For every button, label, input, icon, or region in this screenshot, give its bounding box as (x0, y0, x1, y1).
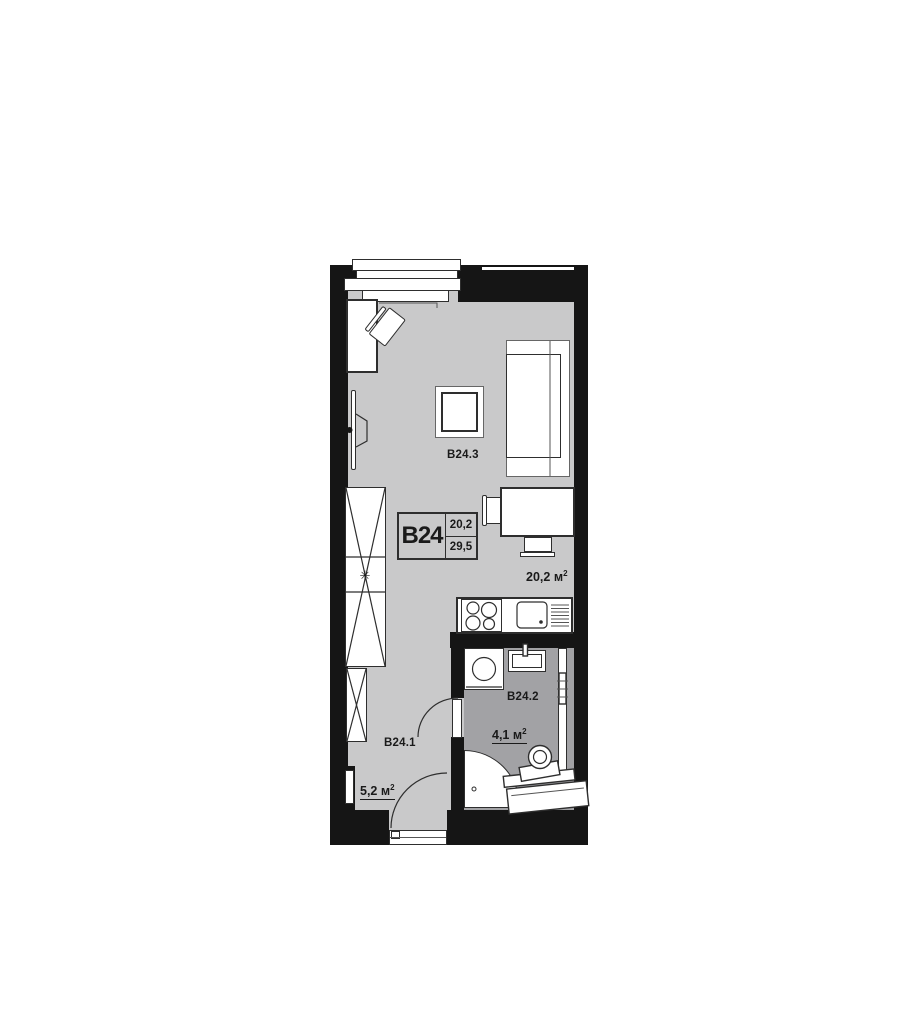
area-label-living: 20,2 м2 (526, 570, 568, 584)
unit-area-lower: 29,5 (446, 537, 476, 559)
unit-code: B24 (399, 514, 445, 558)
unit-values: 20,2 29,5 (445, 514, 476, 558)
wall-bath-divider-lower (451, 737, 464, 810)
wall-bottom-left (330, 810, 389, 845)
washing-machine (464, 648, 504, 690)
entrance-recess-floor (389, 810, 447, 832)
stool-base (520, 552, 555, 557)
area-label-hall: 5,2 м2 (360, 784, 395, 798)
bath-sink-basin (512, 654, 542, 668)
tv (351, 390, 356, 470)
bathroom-door-hinge (452, 689, 463, 698)
wall-top-right (458, 265, 588, 302)
wall-detail-line (482, 267, 574, 270)
ventilation-star-icon: ✳ (356, 569, 374, 583)
wall-right (574, 265, 588, 845)
room-label-living: B24.3 (447, 449, 479, 461)
bed-mattress (506, 354, 561, 458)
desk (500, 487, 575, 537)
wall-bath-top (450, 632, 574, 648)
unit-card: B24 20,2 29,5 (397, 512, 478, 560)
stove (461, 599, 502, 632)
wall-niche (345, 770, 354, 804)
bathroom-door-leaf (452, 699, 462, 738)
entrance-door-handle (391, 831, 400, 839)
desk-chair-seat (486, 497, 501, 524)
floor-plan-canvas: ✳ B24 20,2 29,5 B24.3 B24.1 B24.2 20,2 м… (0, 0, 900, 1036)
hall-closet (346, 668, 367, 742)
wall-bottom-right (447, 810, 588, 845)
stool (524, 537, 552, 552)
bathroom-duct (558, 648, 567, 772)
area-label-bath: 4,1 м2 (492, 728, 527, 742)
room-label-bath: B24.2 (507, 691, 539, 703)
unit-area-upper: 20,2 (446, 514, 476, 537)
table-top (441, 392, 478, 432)
room-label-hall: B24.1 (384, 737, 416, 749)
